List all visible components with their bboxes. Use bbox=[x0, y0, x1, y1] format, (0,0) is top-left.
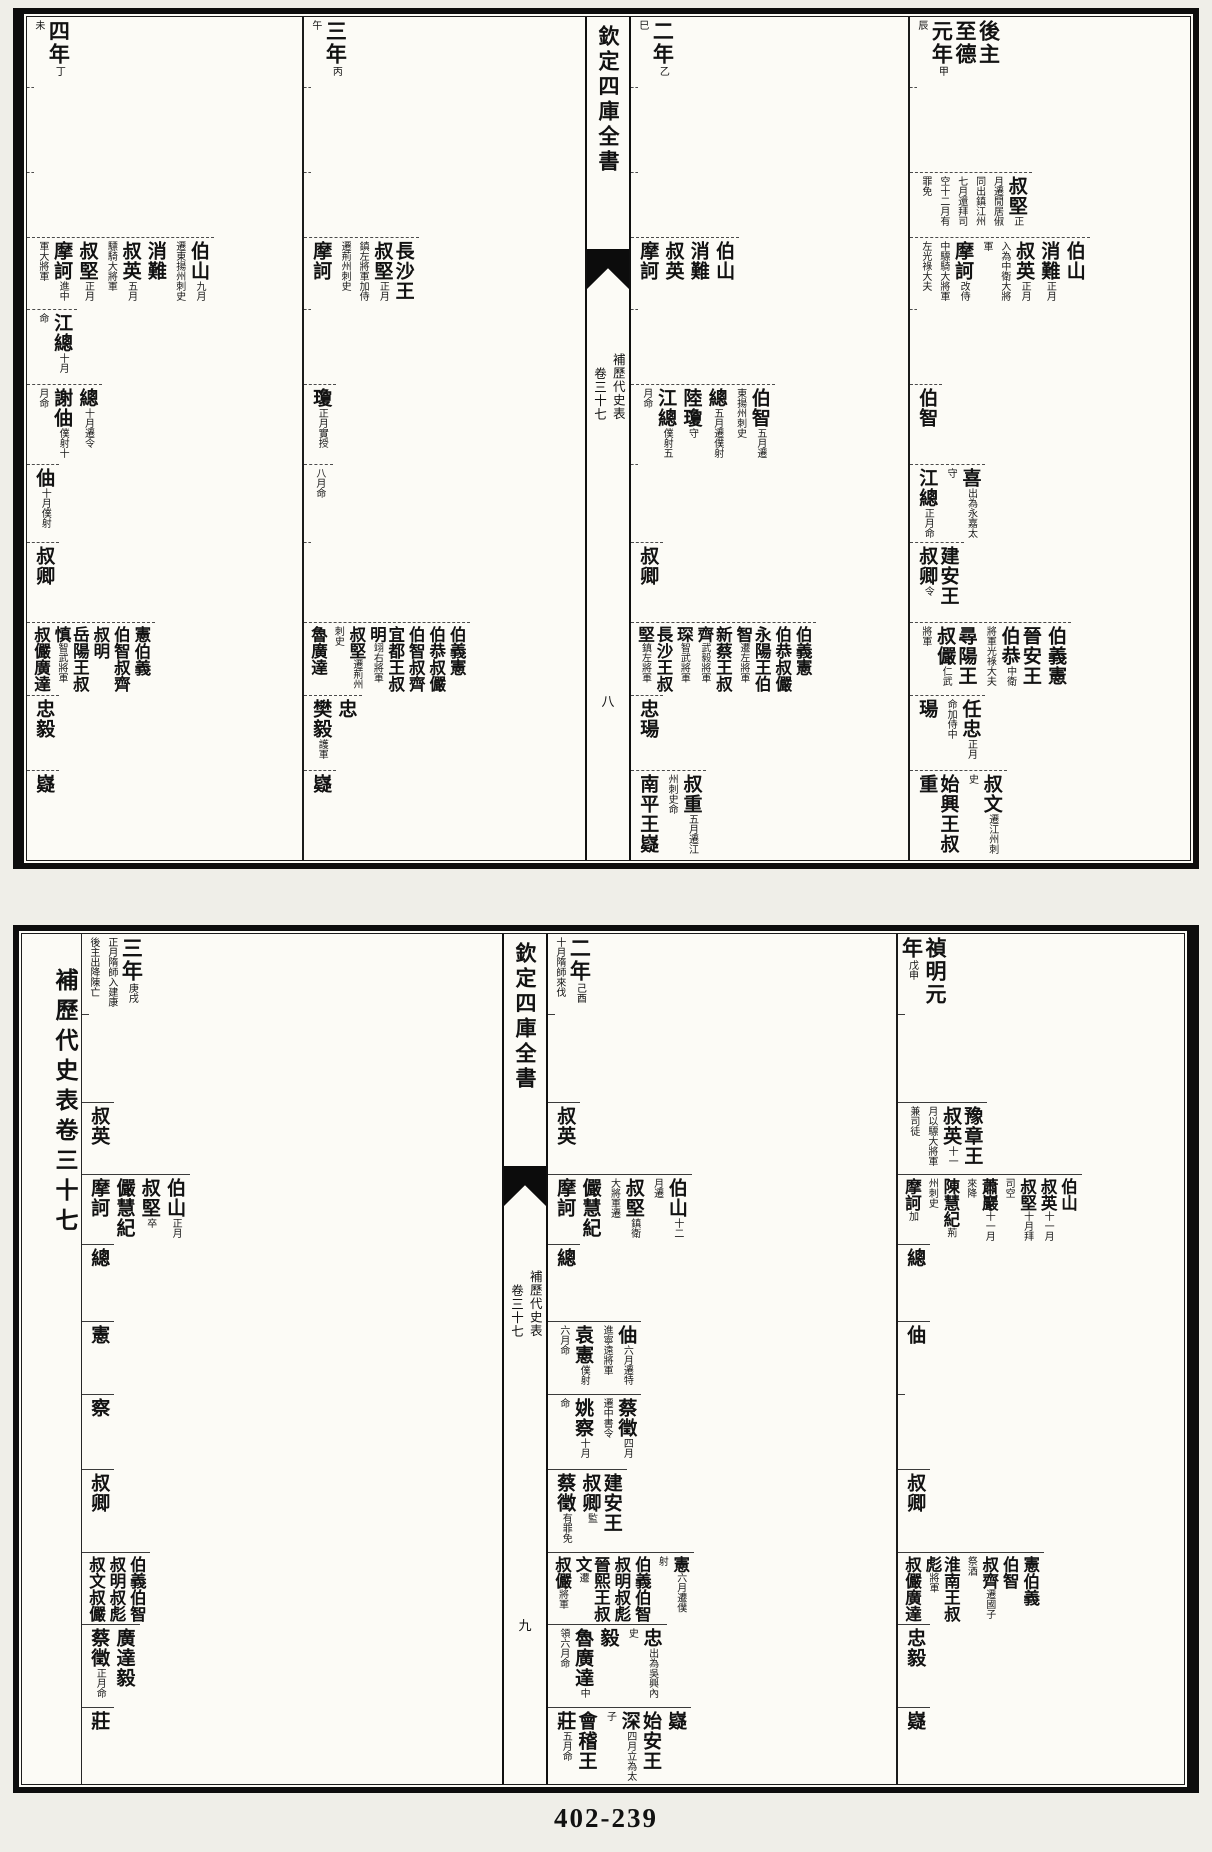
table-entry: 伯智 bbox=[1000, 1556, 1018, 1589]
entry-name: 消難 bbox=[1038, 241, 1060, 281]
table-entry: 伯山 bbox=[1063, 241, 1084, 281]
table-cell bbox=[304, 542, 311, 622]
entry-note: 遷左將軍 bbox=[738, 643, 749, 683]
table-cell: 伷十月僕射 bbox=[27, 464, 59, 542]
entry-name: 魯廣達 bbox=[572, 1628, 594, 1688]
table-entry: 總十月遷令 bbox=[76, 388, 97, 448]
table-entry: 伯恭 bbox=[426, 626, 444, 659]
table-cell: 叔英 bbox=[548, 1102, 580, 1174]
table-cell: 察 bbox=[82, 1394, 114, 1469]
entry-name: 伯恭 bbox=[427, 626, 446, 659]
table-entry: 叔英 bbox=[554, 1106, 575, 1146]
entry-name: 總 bbox=[76, 388, 98, 408]
entry-name: 嶷 bbox=[665, 1711, 687, 1731]
table-entry: 憲 bbox=[1020, 1556, 1038, 1573]
entry-name: 叔齊 bbox=[980, 1556, 999, 1589]
entry-name: 南平王嶷 bbox=[637, 774, 659, 854]
entry-note: 將軍 bbox=[556, 1589, 567, 1609]
entry-name: 建安王叔卿 bbox=[580, 1473, 623, 1533]
year-column: 二年己酉十月隋師來伐叔英伯山十二月遷叔堅鎮衛大將軍遷儼慧紀摩訶總伷六月遷特進寧遠… bbox=[548, 934, 896, 1784]
entry-name: 叔英 bbox=[88, 1106, 110, 1146]
table-entry: 毅 bbox=[597, 1628, 618, 1648]
entry-name: 消難 bbox=[145, 241, 167, 281]
year-note: 戊申 bbox=[907, 960, 918, 980]
entry-name: 江總 bbox=[655, 388, 677, 428]
table-entry: 南平王嶷 bbox=[637, 774, 658, 854]
table-entry: 叔明 bbox=[90, 626, 108, 659]
entry-name: 江總 bbox=[916, 468, 938, 508]
table-cell bbox=[898, 1014, 905, 1102]
table-entry: 伷 bbox=[904, 1325, 925, 1345]
table-entry: 叔儼將軍 bbox=[552, 1556, 570, 1609]
entry-name: 江總 bbox=[51, 313, 73, 353]
table-entry: 長沙王叔堅鎮左將軍 bbox=[635, 626, 672, 693]
entry-name: 叔文 bbox=[86, 1556, 105, 1589]
table-cell: 叔卿 bbox=[631, 542, 663, 622]
table-entry: 摩訶進中軍大將軍 bbox=[33, 241, 72, 307]
table-entry: 始興王叔重 bbox=[916, 774, 959, 858]
spine: 欽定四庫全書 補歷代史表 卷三十七 九 bbox=[502, 934, 548, 1784]
entry-name: 儼 bbox=[580, 1178, 602, 1198]
table-cell: 二年己酉十月隋師來伐 bbox=[548, 934, 596, 1014]
entry-name: 樊毅 bbox=[310, 699, 332, 739]
entry-name: 嶷 bbox=[904, 1711, 926, 1731]
entry-name: 伯智 bbox=[1000, 1556, 1019, 1589]
table-entry: 魯廣達 bbox=[308, 626, 326, 676]
table-cell bbox=[27, 87, 34, 172]
table-cell: 憲伯義伯智叔齊遷國子祭酒淮南王叔彪將軍叔儼廣達 bbox=[898, 1552, 1044, 1624]
entry-note: 八月命 bbox=[314, 468, 325, 498]
entry-name: 伯義 bbox=[1021, 1573, 1040, 1606]
table-entry: 伯恭 bbox=[772, 626, 790, 659]
table-cell bbox=[304, 172, 311, 237]
table-entry: 瑒 bbox=[916, 699, 937, 719]
table-entry: 嶷 bbox=[665, 1711, 686, 1731]
entry-name: 叔堅 bbox=[139, 1178, 161, 1218]
entry-name: 叔齊 bbox=[111, 659, 130, 692]
entry-name: 叔卿 bbox=[33, 546, 55, 586]
table-cell: 伯智 bbox=[910, 384, 942, 464]
table-entry: 伯智 bbox=[111, 626, 129, 659]
entry-name: 摩訶 bbox=[637, 241, 659, 281]
table-entry: 消難 bbox=[145, 241, 166, 281]
table-entry: 忠 bbox=[335, 699, 356, 719]
table-cell: 忠樊毅護軍 bbox=[304, 695, 362, 770]
table-entry: 察 bbox=[88, 1398, 109, 1418]
entry-name: 伯山 bbox=[164, 1178, 186, 1218]
entry-name: 慧紀 bbox=[114, 1198, 136, 1238]
table-entry: 淮南王叔彪將軍 bbox=[922, 1556, 959, 1622]
table-entry: 消難 bbox=[688, 241, 709, 281]
entry-note: 武毅將軍 bbox=[699, 643, 710, 683]
entry-name: 伯智 bbox=[127, 1589, 146, 1622]
entry-name: 毅 bbox=[114, 1668, 136, 1688]
table-cell bbox=[898, 1394, 905, 1469]
table-entry: 晉熙王叔文遷 bbox=[572, 1556, 609, 1622]
table-cell bbox=[910, 87, 917, 172]
entry-note: 正月 bbox=[82, 281, 93, 301]
table-cell: 伯山十二月遷叔堅鎮衛大將軍遷儼慧紀摩訶 bbox=[548, 1174, 692, 1244]
table-entry: 毅 bbox=[113, 1668, 134, 1688]
table-cell: 豫章王叔英十一月以驃大將軍兼司徒 bbox=[898, 1102, 987, 1174]
entry-name: 伯義 bbox=[793, 626, 812, 659]
table-entry: 叔堅遷荊州刺史 bbox=[328, 626, 364, 693]
entry-name: 叔堅 bbox=[76, 241, 98, 281]
table-cell: 叔英 bbox=[82, 1102, 114, 1174]
table-entry: 叔儼 bbox=[772, 659, 790, 692]
table-cell: 蔡徵四月遷中書令姚察十月命 bbox=[548, 1394, 641, 1469]
entry-name: 瓊 bbox=[310, 388, 332, 408]
table-entry: 江總正月命 bbox=[916, 468, 937, 538]
entry-note: 加 bbox=[906, 1211, 917, 1221]
entry-name: 建安王叔卿 bbox=[916, 546, 959, 606]
entry-note: 監 bbox=[586, 1513, 597, 1523]
entry-name: 莊 bbox=[88, 1711, 110, 1731]
entry-name: 魯廣達 bbox=[308, 626, 327, 676]
table-entry: 叔文 bbox=[86, 1556, 104, 1589]
table-entry: 憲 bbox=[131, 626, 149, 643]
table-cell: 伯智五月遷東揚州刺史總五月遷僕射陸瓊守江總僕射五月命 bbox=[631, 384, 775, 464]
table-entry: 伯山十二月遷 bbox=[648, 1178, 687, 1242]
table-cell bbox=[631, 309, 638, 384]
entry-name: 蕭巖 bbox=[979, 1178, 998, 1211]
table-entry: 晉安王伯恭中衛將軍光祿大夫 bbox=[980, 626, 1040, 693]
table-frame: 補歷代史表卷三十七 三年庚戌正月隋師入建康後主出降陳亡叔英伯山正月叔堅卒儼慧紀摩… bbox=[21, 933, 1185, 1785]
entry-name: 儼 bbox=[114, 1178, 136, 1198]
table-cell: 伯山消難叔英摩訶 bbox=[631, 237, 739, 309]
left-half-page: 四年丁未伯山九月遷東揚州刺史消難叔英五月驃騎大將軍叔堅正月摩訶進中軍大將軍江總十… bbox=[27, 17, 585, 860]
entry-name: 伯山 bbox=[1059, 1178, 1078, 1211]
table-cell: 叔堅正月遷閒居俶同出鎮江州七月還拜司空十二月有罪免 bbox=[910, 172, 1032, 237]
spine-book-title: 補歷代史表 bbox=[528, 1270, 543, 1338]
entry-name: 晉熙王叔文 bbox=[573, 1556, 610, 1622]
table-entry: 伯智 bbox=[406, 626, 424, 659]
entry-name: 叔儼 bbox=[86, 1589, 105, 1622]
entry-name: 叔卿 bbox=[88, 1473, 110, 1513]
table-entry: 瓊正月實授 bbox=[310, 388, 331, 448]
table-entry: 廣達 bbox=[902, 1589, 920, 1622]
entry-name: 伯恭 bbox=[773, 626, 792, 659]
table-entry: 伯智 bbox=[916, 388, 937, 428]
table-entry: 永陽王伯智遷左將軍 bbox=[733, 626, 770, 693]
table-cell: 忠瑒 bbox=[631, 695, 663, 770]
table-cell: 四年丁未 bbox=[27, 17, 75, 87]
table-cell: 嶷 bbox=[898, 1707, 930, 1784]
table-entry: 江總十月命 bbox=[33, 313, 72, 382]
entry-name: 叔重 bbox=[680, 774, 702, 814]
table-cell: 伷六月遷特進寧遠將軍袁憲僕射六月命 bbox=[548, 1321, 641, 1394]
table-entry: 嶷 bbox=[310, 774, 331, 794]
entry-note: 有罪免 bbox=[560, 1513, 571, 1543]
spine-page-number: 八 bbox=[601, 691, 614, 710]
table-entry: 伯義 bbox=[131, 643, 149, 676]
spine-title: 欽定四庫全書 bbox=[510, 934, 540, 1160]
table-entry: 伯山九月遷東揚州刺史 bbox=[170, 241, 209, 307]
entry-name: 忠 bbox=[33, 699, 55, 719]
entry-name: 憲 bbox=[671, 1556, 690, 1573]
entry-note: 守 bbox=[686, 428, 697, 438]
table-cell: 廣達毅蔡徵正月命 bbox=[82, 1624, 140, 1707]
entry-name: 忠 bbox=[336, 699, 358, 719]
table-entry: 叔堅正月 bbox=[76, 241, 97, 301]
table-entry: 憲 bbox=[1045, 666, 1066, 686]
table-entry: 叔儼 bbox=[86, 1589, 104, 1622]
entry-note: 十月遷令 bbox=[82, 408, 93, 448]
table-cell: 叔文遷江州刺史始興王叔重 bbox=[910, 770, 1007, 860]
table-entry: 陳慧紀荊州刺史 bbox=[922, 1178, 958, 1242]
entry-name: 叔儼 bbox=[773, 659, 792, 692]
table-entry: 總 bbox=[904, 1248, 925, 1268]
entry-name: 叔明 bbox=[612, 1556, 631, 1589]
table-entry: 伯智 bbox=[632, 1589, 650, 1622]
table-entry: 伯山 bbox=[713, 241, 734, 281]
table-cell: 禎明元年戊申 bbox=[898, 934, 952, 1014]
table-entry: 摩訶改侍中驃騎大將軍左光祿大夫 bbox=[916, 241, 973, 307]
table-entry: 宜都王叔明翊右將軍 bbox=[367, 626, 404, 693]
table-entry: 叔英正月入為中衛大將軍 bbox=[977, 241, 1034, 307]
table-entry: 叔卿 bbox=[33, 546, 54, 586]
entry-name: 摩訶 bbox=[902, 1178, 921, 1211]
table-cell: 憲伯義伯智叔齊叔明岳陽王叔慎智武將軍叔儼廣達 bbox=[27, 622, 155, 695]
entry-name: 瑒 bbox=[637, 719, 659, 739]
entry-name: 伯義 bbox=[132, 643, 151, 676]
entry-name: 叔彪 bbox=[612, 1589, 631, 1622]
table-cell: 喜出為永嘉太守江總正月命 bbox=[910, 464, 985, 542]
table-entry: 叔卿 bbox=[904, 1473, 925, 1513]
entry-name: 忠 bbox=[904, 1628, 926, 1648]
entry-name: 叔明 bbox=[107, 1556, 126, 1589]
table-cell: 伯義憲晉安王伯恭中衛將軍光祿大夫尋陽王叔儼仁武將軍 bbox=[910, 622, 1071, 695]
spine-book-block: 補歷代史表 卷三十七 bbox=[506, 1270, 544, 1362]
table-entry: 慧紀 bbox=[113, 1198, 134, 1238]
page-footer: 402-239 bbox=[0, 1803, 1212, 1834]
year-column: 二年乙巳伯山消難叔英摩訶伯智五月遷東揚州刺史總五月遷僕射陸瓊守江總僕射五月命叔卿… bbox=[631, 17, 908, 860]
table-cell: 伯義憲伯恭叔儼伯智叔齊宜都王叔明翊右將軍叔堅遷荊州刺史魯廣達 bbox=[304, 622, 470, 695]
entry-name: 憲 bbox=[88, 1325, 110, 1345]
table-entry: 建安王叔卿令 bbox=[916, 546, 959, 620]
entry-name: 慧紀 bbox=[580, 1198, 602, 1238]
entry-name: 伯義 bbox=[1045, 626, 1067, 666]
entry-name: 叔文 bbox=[981, 774, 1003, 814]
right-half-page: 二年己酉十月隋師來伐叔英伯山十二月遷叔堅鎮衛大將軍遷儼慧紀摩訶總伷六月遷特進寧遠… bbox=[548, 934, 1188, 1784]
table-entry: 憲 bbox=[88, 1325, 109, 1345]
table-entry: 瑒 bbox=[637, 719, 658, 739]
table-entry: 忠 bbox=[637, 699, 658, 719]
entry-note: 正月 bbox=[1044, 281, 1055, 301]
year-label: 三年 bbox=[323, 20, 348, 66]
table-page-top: 四年丁未伯山九月遷東揚州刺史消難叔英五月驃騎大將軍叔堅正月摩訶進中軍大將軍江總十… bbox=[13, 8, 1199, 869]
entry-name: 叔英 bbox=[120, 241, 142, 281]
table-entry: 伯義 bbox=[793, 626, 811, 659]
table-entry: 伯義 bbox=[447, 626, 465, 659]
table-entry: 八月命 bbox=[310, 468, 328, 498]
entry-name: 伷 bbox=[33, 468, 55, 488]
table-entry: 叔堅卒 bbox=[139, 1178, 160, 1228]
table-entry: 叔齊遷國子祭酒 bbox=[961, 1556, 997, 1622]
entry-name: 謝伷 bbox=[51, 388, 73, 428]
entry-note: 智武將軍 bbox=[56, 643, 67, 683]
edge-volume-title: 補歷代史表卷三十七 bbox=[22, 934, 82, 1784]
table-cell: 三年丙午 bbox=[304, 17, 352, 87]
table-entry: 伯義 bbox=[632, 1556, 650, 1589]
year-label: 後主至德元年 bbox=[929, 20, 1001, 66]
table-entry: 消難正月 bbox=[1038, 241, 1059, 301]
fishtail-icon bbox=[504, 1166, 546, 1206]
entry-name: 摩訶 bbox=[554, 1178, 576, 1218]
table-entry: 憲六月遷僕射 bbox=[652, 1556, 688, 1622]
table-cell bbox=[82, 1014, 89, 1102]
table-entry: 伯智五月遷東揚州刺史 bbox=[731, 388, 770, 462]
table-entry: 始安王深四月立為太子 bbox=[601, 1711, 661, 1782]
table-entry: 儼 bbox=[113, 1178, 134, 1198]
year-label: 二年 bbox=[567, 937, 592, 983]
table-entry: 蔡徵有罪免 bbox=[554, 1473, 575, 1543]
entry-name: 叔堅 bbox=[623, 1178, 645, 1218]
table-cell: 總 bbox=[82, 1244, 114, 1321]
year-column: 三年庚戌正月隋師入建康後主出降陳亡叔英伯山正月叔堅卒儼慧紀摩訶總憲察叔卿伯義伯智… bbox=[82, 934, 502, 1784]
table-entry: 蕭巖十一月來降 bbox=[961, 1178, 997, 1242]
entry-name: 伯義 bbox=[127, 1556, 146, 1589]
table-entry: 叔彪 bbox=[106, 1589, 124, 1622]
table-cell: 嶷 bbox=[27, 770, 59, 860]
entry-name: 叔英 bbox=[554, 1106, 576, 1146]
table-cell: 嶷始安王深四月立為太子會稽王莊五月命 bbox=[548, 1707, 691, 1784]
entry-name: 伯智 bbox=[406, 626, 425, 659]
entry-name: 蔡徵 bbox=[554, 1473, 576, 1513]
table-entry: 叔英五月驃騎大將軍 bbox=[101, 241, 140, 307]
entry-note: 十月僕射 bbox=[39, 488, 50, 528]
table-cell: 伯山消難正月叔英正月入為中衛大將軍摩訶改侍中驃騎大將軍左光祿大夫 bbox=[910, 237, 1090, 309]
table-entry: 江總僕射五月命 bbox=[637, 388, 676, 462]
entry-note: 翊右將軍 bbox=[371, 643, 382, 683]
year-column: 三年丙午長沙王叔堅正月鎮左將軍加侍遷荊州刺史摩訶瓊正月實授八月命伯義憲伯恭叔儼伯… bbox=[302, 17, 585, 860]
entry-name: 伯義 bbox=[632, 1556, 651, 1589]
table-entry: 叔卿 bbox=[637, 546, 658, 586]
table-cell bbox=[631, 464, 638, 542]
entry-note: 正月命 bbox=[922, 508, 933, 538]
table-cell: 伯義伯智叔明叔彪叔文叔儼 bbox=[82, 1552, 150, 1624]
entry-name: 摩訶 bbox=[88, 1178, 110, 1218]
table-entry: 叔英 bbox=[662, 241, 683, 281]
table-entry: 毅 bbox=[33, 719, 54, 739]
entry-name: 消難 bbox=[688, 241, 710, 281]
entry-name: 伯智 bbox=[632, 1589, 651, 1622]
spine-page-number: 九 bbox=[518, 1615, 531, 1634]
entry-name: 嶷 bbox=[33, 774, 55, 794]
entry-note: 令 bbox=[922, 586, 933, 596]
entry-name: 琛 bbox=[674, 626, 693, 643]
year-column: 禎明元年戊申豫章王叔英十一月以驃大將軍兼司徒伯山叔英十一月叔堅十月拜司空蕭巖十一… bbox=[896, 934, 1188, 1784]
table-entry: 蔡徵正月命 bbox=[88, 1628, 109, 1698]
page: 四年丁未伯山九月遷東揚州刺史消難叔英五月驃騎大將軍叔堅正月摩訶進中軍大將軍江總十… bbox=[0, 8, 1212, 1852]
table-entry: 長沙王叔堅正月鎮左將軍加侍遷荊州刺史 bbox=[335, 241, 413, 307]
table-entry: 伯山 bbox=[1058, 1178, 1076, 1211]
table-entry: 蔡徵四月遷中書令 bbox=[597, 1398, 636, 1467]
table-entry: 伷十月僕射 bbox=[33, 468, 54, 528]
entry-name: 伯義 bbox=[447, 626, 466, 659]
entry-name: 叔儼 bbox=[552, 1556, 571, 1589]
table-cell bbox=[910, 309, 917, 384]
table-entry: 樊毅護軍 bbox=[310, 699, 331, 759]
table-cell: 叔卿 bbox=[898, 1469, 930, 1552]
entry-name: 總 bbox=[554, 1248, 576, 1268]
table-cell: 總 bbox=[898, 1244, 930, 1321]
table-entry: 岳陽王叔慎智武將軍 bbox=[51, 626, 88, 693]
table-entry: 慧紀 bbox=[579, 1198, 600, 1238]
entry-name: 總 bbox=[88, 1248, 110, 1268]
entry-note: 將軍 bbox=[927, 1573, 938, 1593]
table-entry: 總 bbox=[88, 1248, 109, 1268]
table-entry: 摩訶 bbox=[554, 1178, 575, 1218]
table-entry: 儼 bbox=[579, 1178, 600, 1198]
table-cell: 莊 bbox=[82, 1707, 114, 1784]
entry-name: 總 bbox=[904, 1248, 926, 1268]
table-entry: 叔儼 bbox=[426, 659, 444, 692]
entry-name: 伯智 bbox=[111, 626, 130, 659]
table-entry: 嶷 bbox=[904, 1711, 925, 1731]
table-entry: 姚察十月命 bbox=[554, 1398, 593, 1467]
spine-volume: 卷三十七 bbox=[592, 367, 607, 421]
entry-name: 嶷 bbox=[310, 774, 332, 794]
table-cell: 八月命 bbox=[304, 464, 333, 542]
table-cell: 江總十月命 bbox=[27, 309, 77, 384]
table-cell: 叔卿 bbox=[82, 1469, 114, 1552]
entry-name: 任忠 bbox=[959, 699, 981, 739]
spine: 欽定四庫全書 補歷代史表 卷三十七 八 bbox=[585, 17, 631, 860]
year-column: 後主至德元年甲辰叔堅正月遷閒居俶同出鎮江州七月還拜司空十二月有罪免伯山消難正月叔… bbox=[908, 17, 1193, 860]
table-entry: 建安王叔卿監 bbox=[579, 1473, 622, 1550]
table-entry: 任忠正月命加侍中 bbox=[941, 699, 980, 768]
table-entry: 伯義 bbox=[127, 1556, 145, 1589]
entry-name: 叔彪 bbox=[107, 1589, 126, 1622]
entry-name: 毅 bbox=[33, 719, 55, 739]
entry-note: 鎮左將軍 bbox=[639, 643, 650, 683]
entry-name: 叔堅 bbox=[1018, 1178, 1037, 1211]
entry-name: 伷 bbox=[904, 1325, 926, 1345]
table-entry: 喜出為永嘉太守 bbox=[941, 468, 980, 540]
entry-note: 卒 bbox=[145, 1218, 156, 1228]
table-cell: 叔重五月遷江州刺史命南平王嶷 bbox=[631, 770, 706, 860]
entry-name: 叔堅 bbox=[1006, 176, 1028, 216]
entry-name: 叔儼 bbox=[902, 1556, 921, 1589]
entry-note: 正月 bbox=[170, 1218, 181, 1238]
fishtail-icon bbox=[587, 249, 629, 289]
table-entry: 伯智 bbox=[127, 1589, 145, 1622]
year-label: 三年 bbox=[119, 937, 144, 983]
entry-name: 叔堅 bbox=[347, 626, 366, 659]
entry-name: 瑒 bbox=[916, 699, 938, 719]
table-entry: 豫章王叔英十一月以驃大將軍兼司徒 bbox=[904, 1106, 982, 1172]
entry-note: 護軍 bbox=[316, 739, 327, 759]
table-entry: 新蔡王叔齊武毅將軍 bbox=[694, 626, 731, 693]
entry-note: 正月實授 bbox=[316, 408, 327, 448]
entry-note: 十一月 bbox=[1042, 1211, 1053, 1241]
table-cell bbox=[548, 1014, 555, 1102]
table-entry: 叔文遷江州刺史 bbox=[963, 774, 1002, 858]
entry-name: 伯智 bbox=[916, 388, 938, 428]
table-entry: 摩訶 bbox=[637, 241, 658, 281]
left-half-page: 三年庚戌正月隋師入建康後主出降陳亡叔英伯山正月叔堅卒儼慧紀摩訶總憲察叔卿伯義伯智… bbox=[82, 934, 502, 1784]
table-entry: 廣達 bbox=[113, 1628, 134, 1668]
right-half-page: 二年乙巳伯山消難叔英摩訶伯智五月遷東揚州刺史總五月遷僕射陸瓊守江總僕射五月命叔卿… bbox=[631, 17, 1193, 860]
entry-name: 摩訶 bbox=[952, 241, 974, 281]
entry-name: 伯山 bbox=[713, 241, 735, 281]
table-entry: 叔明 bbox=[611, 1556, 629, 1589]
entry-name: 忠 bbox=[641, 1628, 663, 1648]
table-page-bottom: 補歷代史表卷三十七 三年庚戌正月隋師入建康後主出降陳亡叔英伯山正月叔堅卒儼慧紀摩… bbox=[13, 925, 1199, 1793]
table-cell: 伯山九月遷東揚州刺史消難叔英五月驃騎大將軍叔堅正月摩訶進中軍大將軍 bbox=[27, 237, 214, 309]
entry-name: 陸瓊 bbox=[680, 388, 702, 428]
